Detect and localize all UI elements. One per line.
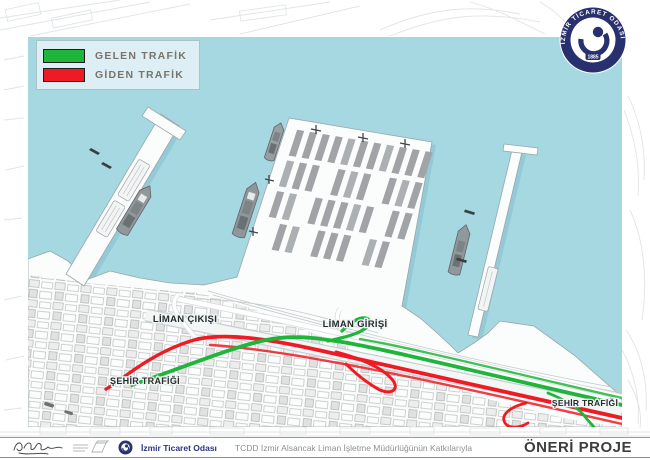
map-label-liman-girisi: LİMAN GİRİŞİ xyxy=(323,319,388,330)
partner-logo xyxy=(72,440,110,456)
signature-mark xyxy=(12,439,64,456)
footer-org-name: İzmir Ticaret Odası xyxy=(141,443,217,453)
legend-row-incoming: GELEN TRAFİK xyxy=(43,46,187,65)
project-title: ÖNERİ PROJE xyxy=(524,439,632,456)
traffic-legend: GELEN TRAFİK GİDEN TRAFİK xyxy=(36,40,200,90)
harbor-map: LİMAN ÇIKIŞI LİMAN GİRİŞİ ŞEHİR TRAFİĞİ … xyxy=(28,37,622,427)
footer-credit-text: TCDD İzmir Alsancak Liman İşletme Müdürl… xyxy=(235,443,472,453)
footer-bar: İzmir Ticaret Odası TCDD İzmir Alsancak … xyxy=(0,437,650,458)
map-label-sehir-trafigi-left: ŞEHİR TRAFİĞİ xyxy=(110,375,180,386)
legend-label-incoming: GELEN TRAFİK xyxy=(95,50,187,62)
logo-year: 1885 xyxy=(587,55,598,61)
incoming-color-swatch xyxy=(43,49,85,63)
map-label-liman-cikisi: LİMAN ÇIKIŞI xyxy=(153,314,217,325)
izmir-ticaret-odasi-logo: 1885 İZMİR TİCARET ODASI xyxy=(556,3,630,77)
map-label-sehir-trafigi-right: ŞEHİR TRAFİĞİ xyxy=(552,397,618,408)
ito-badge-icon xyxy=(118,440,133,455)
legend-label-outgoing: GİDEN TRAFİK xyxy=(95,69,184,81)
legend-row-outgoing: GİDEN TRAFİK xyxy=(43,65,187,84)
outgoing-color-swatch xyxy=(43,68,85,82)
